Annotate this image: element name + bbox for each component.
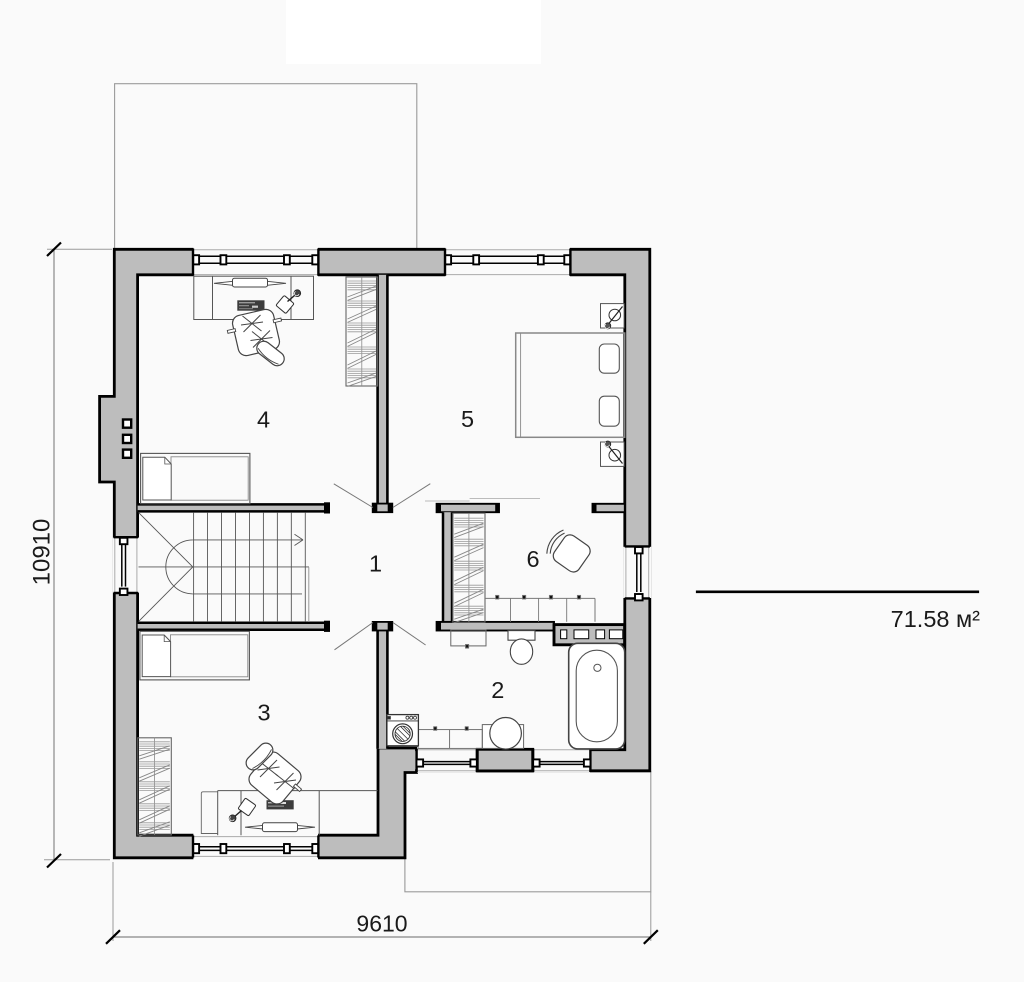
svg-text:3: 3 [257,700,270,726]
svg-text:6: 6 [526,546,539,572]
svg-text:9610: 9610 [356,911,407,937]
svg-text:4: 4 [257,407,270,433]
svg-text:2: 2 [491,677,504,703]
svg-text:10910: 10910 [29,519,56,586]
svg-text:5: 5 [461,406,474,432]
svg-text:1: 1 [369,551,382,577]
svg-text:71.58 м²: 71.58 м² [891,606,980,632]
